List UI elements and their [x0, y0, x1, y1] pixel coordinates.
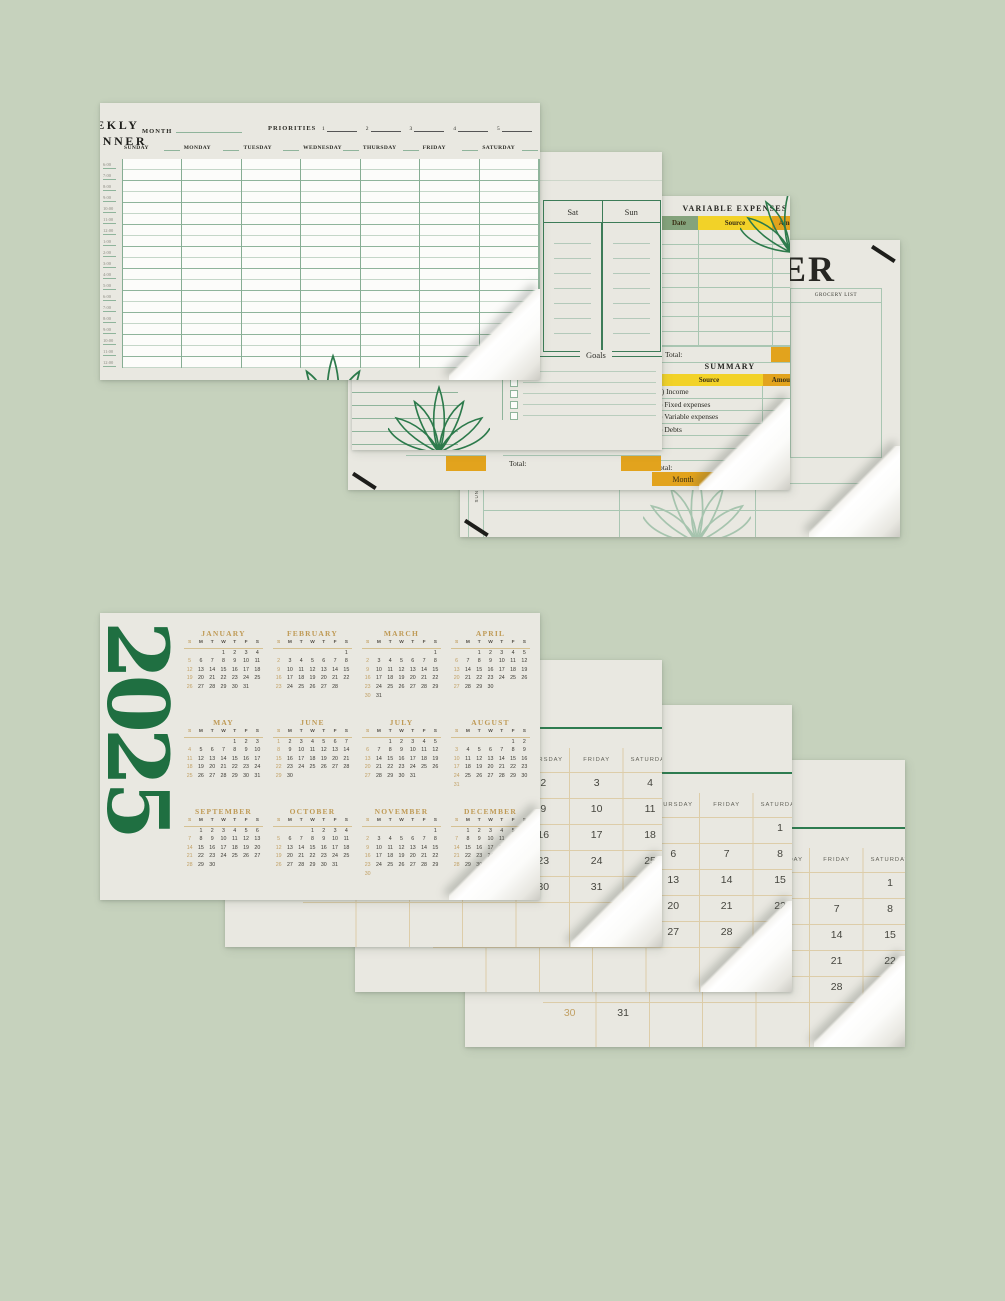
mini-day-number: 18	[418, 755, 429, 764]
mini-day-number: 30	[362, 870, 373, 879]
mini-day-number: 10	[407, 746, 418, 755]
mini-day-number	[451, 649, 462, 658]
time-slot-label: 6:00	[100, 291, 122, 302]
mini-day-number: 4	[507, 649, 518, 658]
expense-row	[660, 288, 790, 303]
mini-day-number	[341, 772, 352, 781]
day-letter: T	[407, 728, 418, 737]
mini-week-row: 13141516171819	[362, 755, 441, 764]
mini-day-number: 7	[207, 657, 218, 666]
weekly-day-label: WEDNESDAY	[303, 145, 342, 151]
priority-number: 2	[366, 126, 369, 132]
mini-month-title: OCTOBER	[273, 807, 352, 817]
mini-day-number: 16	[273, 674, 284, 683]
mini-day-number: 15	[307, 844, 318, 853]
mini-week-row: 20212223242526	[362, 763, 441, 772]
mini-day-number: 3	[407, 738, 418, 747]
priority-number: 1	[322, 126, 325, 132]
checkbox-icon	[510, 401, 518, 409]
day-date-blank	[522, 145, 538, 151]
mini-day-number: 12	[318, 746, 329, 755]
mini-week-row: 1234	[273, 827, 352, 836]
mini-day-number	[407, 649, 418, 658]
mini-day-number: 5	[273, 835, 284, 844]
sunday-column-label: Sun	[602, 201, 661, 222]
mini-day-number: 9	[229, 657, 240, 666]
day-letter: S	[273, 639, 284, 648]
mini-day-number: 26	[318, 763, 329, 772]
calendar-day-cell: 3	[570, 773, 623, 798]
mini-day-number: 26	[240, 852, 251, 861]
calendar-day-cell: 15	[863, 925, 905, 950]
day-letter: S	[451, 728, 462, 737]
mini-day-number	[362, 649, 373, 658]
mini-week-row: 25262728293031	[184, 772, 263, 781]
saturday-column-label: Sat	[544, 201, 602, 222]
mini-day-number: 14	[496, 755, 507, 764]
goal-checkbox-row	[510, 410, 656, 421]
time-slot-label: 10:00	[100, 335, 122, 346]
mini-day-number: 11	[385, 844, 396, 853]
mini-day-number: 13	[407, 666, 418, 675]
mini-day-number: 11	[307, 746, 318, 755]
mini-day-number: 9	[207, 835, 218, 844]
mini-day-number: 22	[474, 674, 485, 683]
day-letter: S	[430, 728, 441, 737]
mini-day-number: 28	[329, 683, 340, 692]
mini-day-number	[507, 781, 518, 790]
day-letter: W	[307, 728, 318, 737]
mini-day-number: 2	[362, 835, 373, 844]
mini-week-row: 17181920212223	[451, 763, 530, 772]
time-slot-label: 3:00	[100, 258, 122, 269]
mini-day-number: 8	[385, 746, 396, 755]
mini-week-row: 6789101112	[362, 746, 441, 755]
priority-blank: 5	[497, 125, 532, 132]
mini-week-row: 23242526272829	[362, 861, 441, 870]
mini-day-number: 29	[273, 772, 284, 781]
day-letter: W	[485, 728, 496, 737]
mini-day-number	[496, 738, 507, 747]
saturday-notes-area	[544, 229, 601, 343]
mini-week-row: 891011121314	[273, 746, 352, 755]
mini-day-number: 3	[218, 827, 229, 836]
calendar-day-cell: 10	[570, 799, 623, 824]
mini-day-number	[474, 738, 485, 747]
mini-day-number: 8	[507, 746, 518, 755]
summary-row: (+) Income	[655, 386, 790, 399]
mini-week-row: 1234	[184, 649, 263, 658]
mini-day-number: 22	[273, 763, 284, 772]
calendar-day-cell: 17	[570, 825, 623, 850]
weekly-day-header-row: SUNDAYMONDAYTUESDAYWEDNESDAYTHURSDAYFRID…	[122, 145, 540, 151]
mini-month-title: JANUARY	[184, 629, 263, 639]
mini-day-number: 21	[207, 674, 218, 683]
day-letter: S	[362, 639, 373, 648]
mini-month-title: JUNE	[273, 718, 352, 728]
mini-day-number: 25	[341, 852, 352, 861]
mini-day-number: 16	[396, 755, 407, 764]
day-letter: S	[341, 817, 352, 826]
mini-day-number	[430, 772, 441, 781]
mini-month-calendar: FEBRUARYSMTWTFS1234567891011121314151617…	[273, 629, 352, 712]
mini-day-number: 26	[184, 683, 195, 692]
column-header-date: Date	[660, 216, 698, 230]
mini-day-number: 29	[229, 772, 240, 781]
mini-day-number: 5	[430, 738, 441, 747]
mini-week-row: 16171819202122	[273, 674, 352, 683]
calendar-day-cell: 8	[753, 844, 792, 869]
total-amount-cell	[621, 456, 661, 471]
mini-day-number: 19	[184, 674, 195, 683]
day-letter: W	[396, 817, 407, 826]
mini-day-number: 20	[362, 763, 373, 772]
mini-week-row: 13141516171819	[451, 666, 530, 675]
day-letter: W	[307, 817, 318, 826]
mini-day-number: 14	[296, 844, 307, 853]
time-slot-label: 7:00	[100, 170, 122, 181]
mini-month-title: MARCH	[362, 629, 441, 639]
mini-day-number: 1	[218, 649, 229, 658]
mini-day-number: 22	[507, 763, 518, 772]
mini-day-number: 1	[273, 738, 284, 747]
day-letter: M	[195, 728, 206, 737]
year-label: 2025	[102, 621, 171, 893]
mini-day-number: 26	[273, 861, 284, 870]
mini-day-number: 6	[195, 657, 206, 666]
mini-day-number: 24	[496, 674, 507, 683]
mini-day-number: 26	[430, 763, 441, 772]
mini-day-number: 4	[184, 746, 195, 755]
time-slot-label: 12:00	[100, 225, 122, 236]
mini-day-number: 17	[284, 674, 295, 683]
mini-day-number	[184, 827, 195, 836]
mini-day-number: 25	[462, 772, 473, 781]
mini-day-number	[195, 649, 206, 658]
mini-week-row: 232425262728	[273, 683, 352, 692]
mini-day-number: 17	[218, 844, 229, 853]
day-letter: S	[252, 817, 263, 826]
summary-title: SUMMARY	[655, 362, 790, 374]
mini-day-number: 4	[307, 738, 318, 747]
day-letter: T	[385, 639, 396, 648]
mini-day-number: 6	[318, 657, 329, 666]
mini-day-number: 8	[430, 657, 441, 666]
mini-day-number: 15	[385, 755, 396, 764]
mini-day-number: 12	[307, 666, 318, 675]
day-letter: F	[507, 639, 518, 648]
day-letter: S	[341, 639, 352, 648]
mini-week-row: 2345678	[362, 657, 441, 666]
mini-month-calendar: NOVEMBERSMTWTFS1234567891011121314151617…	[362, 807, 441, 890]
page-curl	[809, 446, 900, 537]
mini-day-number: 11	[341, 835, 352, 844]
mini-day-number	[418, 649, 429, 658]
mini-day-number: 12	[396, 844, 407, 853]
mini-day-number: 27	[362, 772, 373, 781]
mini-day-number: 6	[207, 746, 218, 755]
calendar-day-cell	[700, 818, 753, 843]
mini-month-calendar: MAYSMTWTFS123456789101112131415161718192…	[184, 718, 263, 801]
mini-day-number	[385, 649, 396, 658]
mini-day-letters: SMTWTFS	[273, 639, 352, 649]
mini-day-number	[218, 861, 229, 870]
mini-day-number: 27	[329, 763, 340, 772]
day-letter: S	[430, 817, 441, 826]
mini-day-number: 28	[207, 683, 218, 692]
day-letter: F	[240, 817, 251, 826]
mini-day-number	[195, 738, 206, 747]
mini-day-number: 13	[207, 755, 218, 764]
time-slot-label: 7:00	[100, 302, 122, 313]
mini-day-number: 11	[184, 755, 195, 764]
mini-day-number: 16	[207, 844, 218, 853]
calendar-day-cell	[517, 903, 570, 947]
day-letter: T	[296, 728, 307, 737]
mini-month-calendar: JUNESMTWTFS12345678910111213141516171819…	[273, 718, 352, 801]
goal-blank-line	[523, 415, 656, 416]
mini-day-number: 10	[373, 844, 384, 853]
day-letter: M	[462, 639, 473, 648]
calendar-day-cell: 15	[753, 870, 792, 895]
mini-day-number: 27	[407, 683, 418, 692]
mini-day-number: 28	[496, 772, 507, 781]
checkbox-icon	[510, 412, 518, 420]
mini-day-number: 11	[385, 666, 396, 675]
mini-day-number: 29	[385, 772, 396, 781]
mini-day-number: 14	[184, 844, 195, 853]
calendar-day-cell	[303, 903, 356, 947]
mini-week-row: 14151617181920	[184, 844, 263, 853]
mini-day-number: 18	[229, 844, 240, 853]
year-calendar-page: 2025 JANUARYSMTWTFS123456789101112131415…	[100, 613, 540, 900]
mini-day-number: 22	[195, 852, 206, 861]
calendar-day-cell: 4	[623, 773, 662, 798]
time-slot-label: 11:00	[100, 214, 122, 225]
mini-day-number	[407, 870, 418, 879]
mini-week-row: 23242526272829	[362, 683, 441, 692]
mini-day-number: 12	[474, 755, 485, 764]
mini-week-row: 2728293031	[362, 772, 441, 781]
mini-day-number: 21	[373, 763, 384, 772]
mini-week-row: 9101112131415	[362, 666, 441, 675]
mini-day-number: 18	[341, 844, 352, 853]
day-letter: S	[184, 817, 195, 826]
day-letter: T	[474, 728, 485, 737]
goal-blank-line	[523, 393, 656, 394]
mini-day-number: 30	[207, 861, 218, 870]
mini-day-number: 1	[195, 827, 206, 836]
mini-day-number: 23	[207, 852, 218, 861]
mini-day-number: 13	[195, 666, 206, 675]
day-letter: W	[485, 639, 496, 648]
mini-day-number: 27	[252, 852, 263, 861]
mini-day-number: 31	[407, 772, 418, 781]
day-date-blank	[343, 145, 359, 151]
mini-month-calendar: SEPTEMBERSMTWTFS123456789101112131415161…	[184, 807, 263, 890]
day-letter: F	[418, 728, 429, 737]
mini-day-number: 6	[407, 657, 418, 666]
mini-day-number	[284, 649, 295, 658]
mini-week-row: 12	[451, 738, 530, 747]
mini-day-number: 21	[329, 674, 340, 683]
mini-day-number: 23	[284, 763, 295, 772]
mini-week-row: 24252627282930	[451, 772, 530, 781]
mini-day-number: 29	[430, 861, 441, 870]
mini-month-calendar: JULYSMTWTFS12345678910111213141516171819…	[362, 718, 441, 801]
mini-day-number: 20	[284, 852, 295, 861]
weekly-day-column	[300, 159, 359, 368]
mini-week-row: 6789101112	[451, 657, 530, 666]
planner-mockup-canvas: { "colors": { "bg": "#c6d2bd", "paper": …	[0, 0, 1005, 1301]
mini-day-number: 2	[284, 738, 295, 747]
time-slot-label: 12:00	[100, 357, 122, 368]
day-letter: S	[273, 728, 284, 737]
month-day-header: SATURDAY	[863, 848, 905, 872]
mini-day-number: 13	[318, 666, 329, 675]
mini-day-number	[462, 738, 473, 747]
mini-day-number: 17	[296, 755, 307, 764]
mini-day-number: 10	[496, 657, 507, 666]
weekly-planner-page: WEEKLY PLANNER MONTH PRIORITIES 12345 SU…	[100, 103, 540, 380]
priority-number: 5	[497, 126, 500, 132]
weekly-day-label: TUESDAY	[243, 145, 272, 151]
day-letter: S	[341, 728, 352, 737]
mini-day-number: 12	[195, 755, 206, 764]
mini-day-number: 6	[252, 827, 263, 836]
mini-day-number: 24	[373, 861, 384, 870]
mini-day-number: 24	[407, 763, 418, 772]
mini-day-number	[284, 827, 295, 836]
time-slot-label: 6:00	[100, 159, 122, 170]
month-day-header: FRIDAY	[570, 748, 623, 772]
mini-day-number: 4	[296, 657, 307, 666]
mini-day-number: 5	[396, 657, 407, 666]
weekly-day-header: FRIDAY	[421, 145, 481, 151]
calendar-day-cell	[463, 903, 516, 947]
weekly-day-label: SUNDAY	[124, 145, 149, 151]
mini-day-number: 7	[418, 657, 429, 666]
mini-day-number: 29	[195, 861, 206, 870]
total-amount-cell	[446, 456, 486, 471]
mini-day-number	[496, 683, 507, 692]
mini-day-number: 5	[396, 835, 407, 844]
mini-day-number: 25	[252, 674, 263, 683]
weekly-day-header: SUNDAY	[122, 145, 182, 151]
expense-row	[660, 332, 790, 347]
weekly-day-column	[241, 159, 300, 368]
mini-day-number: 30	[519, 772, 530, 781]
mini-day-number: 10	[252, 746, 263, 755]
mini-month-calendar: OCTOBERSMTWTFS12345678910111213141516171…	[273, 807, 352, 890]
mini-day-number: 5	[240, 827, 251, 836]
weekly-day-label: THURSDAY	[363, 145, 397, 151]
mini-day-number: 24	[284, 683, 295, 692]
mini-day-number: 2	[240, 738, 251, 747]
mini-day-number: 21	[418, 674, 429, 683]
weekly-times-column: 6:007:008:009:0010:0011:0012:001:002:003…	[100, 159, 122, 368]
mini-day-number: 13	[407, 844, 418, 853]
mini-day-number: 31	[252, 772, 263, 781]
month-day-header: SATURDAY	[753, 793, 792, 817]
mini-day-number	[184, 738, 195, 747]
mini-day-letters: SMTWTFS	[184, 639, 263, 649]
grocery-list-label: GROCERY LIST	[791, 289, 881, 303]
priorities-label: PRIORITIES	[268, 125, 316, 132]
mini-day-number: 14	[418, 844, 429, 853]
mini-day-number: 15	[430, 844, 441, 853]
mini-week-row: 15161718192021	[273, 755, 352, 764]
mini-day-letters: SMTWTFS	[451, 728, 530, 738]
mini-day-number: 18	[385, 852, 396, 861]
goal-checkbox-row	[510, 399, 656, 410]
expense-row	[660, 317, 790, 332]
mini-month-calendar: MARCHSMTWTFS1234567891011121314151617181…	[362, 629, 441, 712]
mini-day-number: 13	[252, 835, 263, 844]
mini-week-row: 262728293031	[184, 683, 263, 692]
mini-week-row: 78910111213	[184, 835, 263, 844]
mini-day-number: 17	[329, 844, 340, 853]
mini-day-number: 8	[218, 657, 229, 666]
calendar-day-cell	[703, 1003, 756, 1047]
calendar-day-cell: 14	[810, 925, 863, 950]
mini-day-number: 2	[519, 738, 530, 747]
day-letter: T	[496, 639, 507, 648]
mini-day-number	[307, 649, 318, 658]
mini-day-number: 10	[329, 835, 340, 844]
mini-day-number: 1	[341, 649, 352, 658]
mini-day-number	[418, 772, 429, 781]
day-letter: S	[451, 639, 462, 648]
mini-day-number: 25	[307, 763, 318, 772]
mini-day-letters: SMTWTFS	[362, 728, 441, 738]
mini-day-number: 15	[273, 755, 284, 764]
day-letter: S	[519, 639, 530, 648]
mini-day-number: 24	[240, 674, 251, 683]
day-letter: F	[329, 817, 340, 826]
mini-day-number	[184, 649, 195, 658]
mini-day-number	[462, 781, 473, 790]
mini-day-number: 12	[430, 746, 441, 755]
mini-day-number	[451, 738, 462, 747]
mini-day-number	[373, 738, 384, 747]
mini-day-number	[329, 772, 340, 781]
day-letter: S	[519, 728, 530, 737]
mini-day-letters: SMTWTFS	[451, 639, 530, 649]
mini-day-number: 17	[496, 666, 507, 675]
day-letter: F	[329, 639, 340, 648]
mini-day-number: 17	[373, 674, 384, 683]
mini-day-number: 26	[519, 674, 530, 683]
mini-day-number: 20	[318, 674, 329, 683]
mini-month-title: FEBRUARY	[273, 629, 352, 639]
mini-month-title: JULY	[362, 718, 441, 728]
mini-day-number	[418, 827, 429, 836]
mini-day-number: 29	[307, 861, 318, 870]
grocery-list-box: GROCERY LIST	[790, 288, 882, 458]
mini-day-number: 15	[474, 666, 485, 675]
mini-week-row: 567891011	[184, 657, 263, 666]
mini-day-number: 10	[296, 746, 307, 755]
mini-week-row: 3456789	[451, 746, 530, 755]
mini-day-number: 31	[329, 861, 340, 870]
mini-day-number	[485, 781, 496, 790]
lotus-flower-icon	[278, 349, 388, 380]
mini-day-number	[240, 861, 251, 870]
mini-day-number	[385, 692, 396, 701]
mini-day-number	[519, 781, 530, 790]
mini-day-number: 4	[252, 649, 263, 658]
